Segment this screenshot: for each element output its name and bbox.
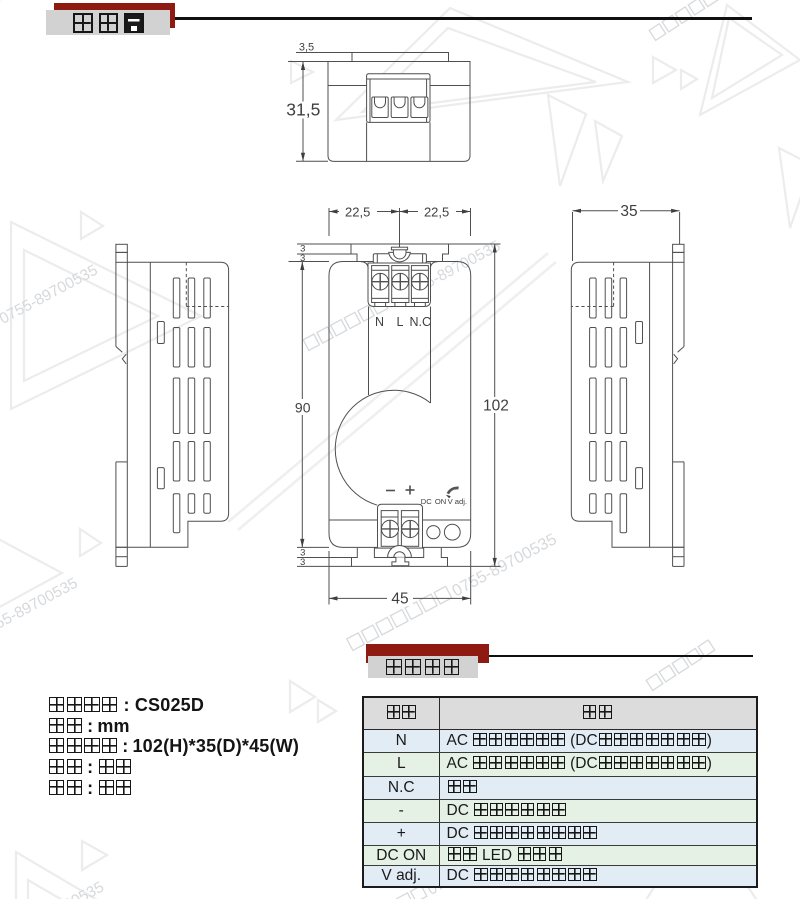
svg-text:90: 90 (295, 399, 311, 415)
svg-text:3,5: 3,5 (299, 42, 314, 54)
svg-text:102: 102 (483, 398, 509, 415)
svg-text:DC: DC (421, 497, 432, 506)
svg-text:ON: ON (435, 497, 446, 506)
svg-text:89700535: 89700535 (38, 879, 107, 899)
svg-text:45: 45 (391, 591, 408, 608)
svg-text:3: 3 (300, 557, 305, 568)
svg-text:V adj.: V adj. (448, 497, 467, 506)
svg-text:L: L (397, 315, 404, 329)
svg-text:0755-897: 0755-897 (0, 0, 31, 21)
svg-text:22,5: 22,5 (424, 204, 449, 219)
svg-text:22,5: 22,5 (345, 204, 370, 219)
svg-text:31,5: 31,5 (286, 100, 320, 120)
svg-text:0755-89700535: 0755-89700535 (0, 262, 101, 328)
svg-text:N: N (375, 315, 384, 329)
svg-text:0755-89700535: 0755-89700535 (449, 530, 560, 600)
svg-text:N.C: N.C (410, 315, 432, 329)
svg-text:35: 35 (620, 203, 637, 220)
